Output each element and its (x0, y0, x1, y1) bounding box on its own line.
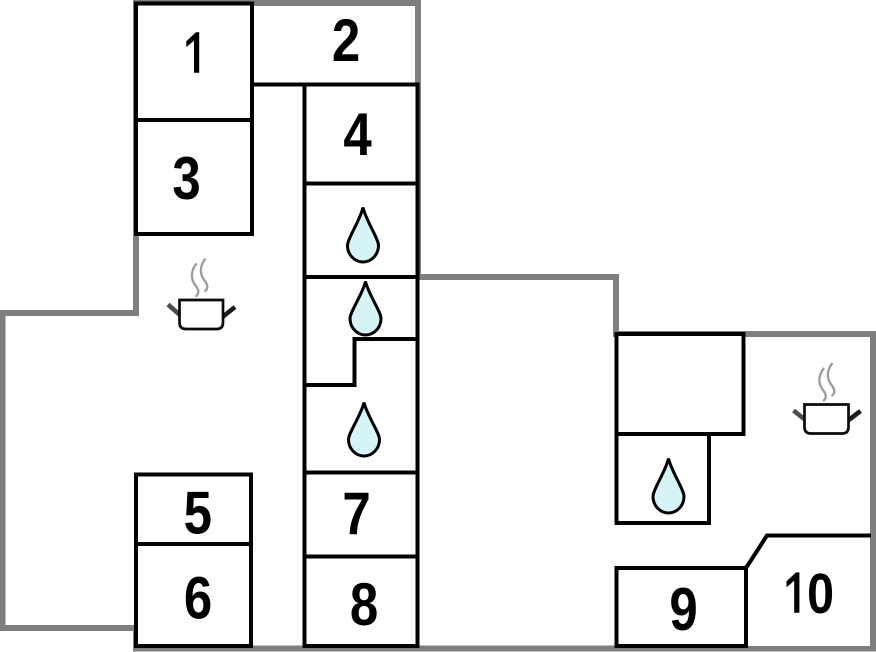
svg-text:3: 3 (172, 145, 200, 212)
svg-text:2: 2 (332, 7, 360, 74)
svg-text:0: 0 (807, 562, 834, 626)
svg-text:7: 7 (342, 480, 370, 547)
svg-text:5: 5 (184, 480, 212, 547)
svg-text:6: 6 (184, 565, 212, 632)
svg-text:8: 8 (350, 571, 378, 638)
svg-text:9: 9 (669, 576, 697, 643)
svg-text:4: 4 (343, 101, 371, 168)
